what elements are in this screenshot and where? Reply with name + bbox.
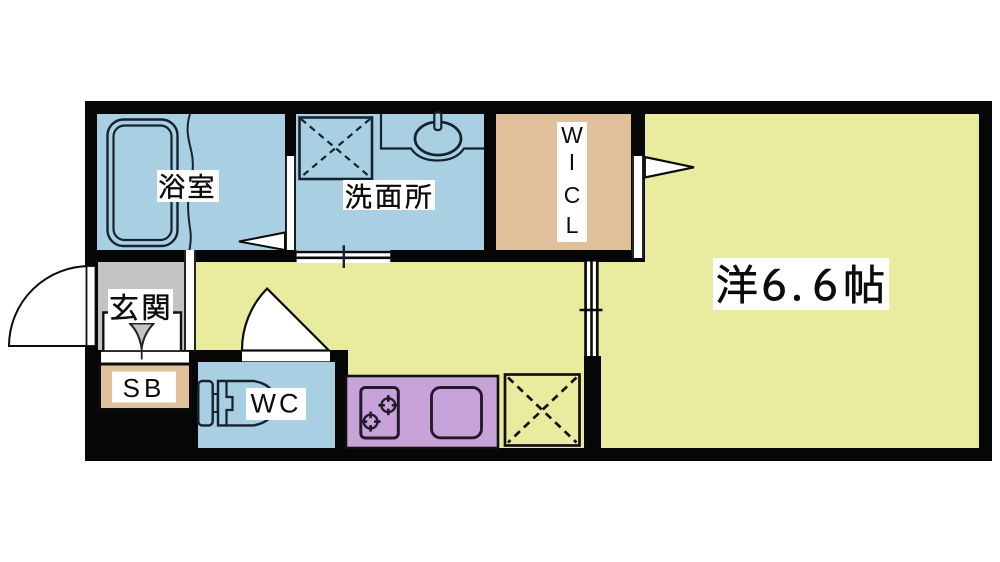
- svg-text:WC: WC: [251, 389, 302, 419]
- svg-text:L: L: [566, 212, 579, 238]
- svg-text:W: W: [561, 122, 583, 148]
- svg-text:C: C: [564, 182, 581, 208]
- svg-text:I: I: [569, 149, 575, 175]
- svg-text:SB: SB: [123, 373, 166, 403]
